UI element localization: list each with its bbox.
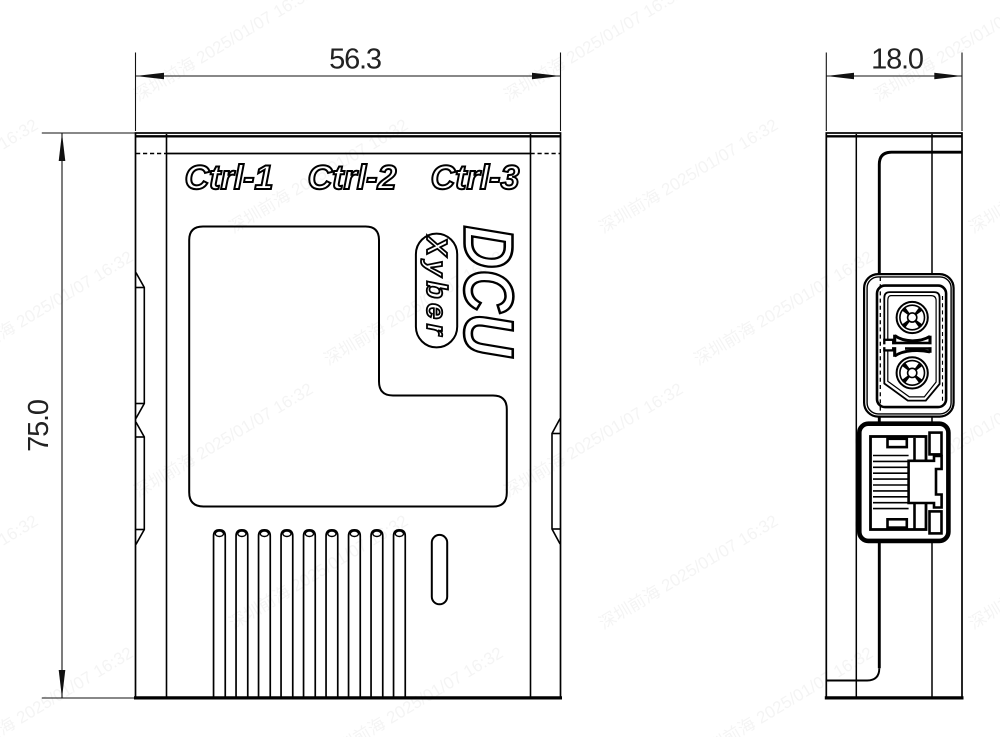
svg-text:Ctrl-3: Ctrl-3 [431, 159, 520, 197]
svg-text:18.0: 18.0 [871, 44, 923, 76]
svg-text:75.0: 75.0 [23, 400, 55, 452]
svg-text:56.3: 56.3 [329, 44, 381, 76]
svg-text:Xyber: Xyber [420, 234, 452, 339]
svg-text:Ctrl-1: Ctrl-1 [185, 159, 274, 197]
svg-text:DCU: DCU [449, 226, 528, 359]
svg-text:Ctrl-2: Ctrl-2 [308, 159, 397, 197]
